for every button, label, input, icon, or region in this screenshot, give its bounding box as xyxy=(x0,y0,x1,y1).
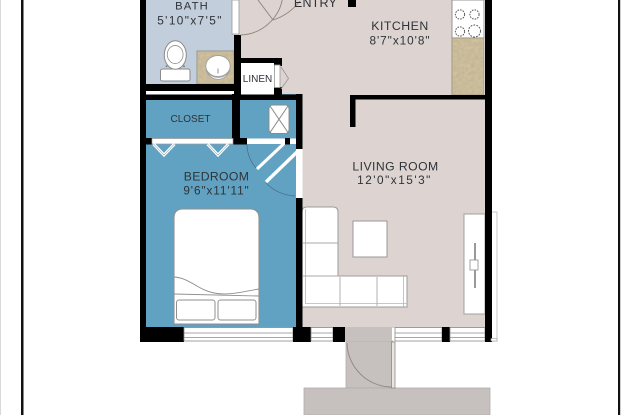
svg-text:KITCHEN: KITCHEN xyxy=(371,19,428,33)
svg-text:LINEN: LINEN xyxy=(243,74,272,85)
svg-text:LIVING ROOM: LIVING ROOM xyxy=(352,160,438,174)
svg-text:BEDROOM: BEDROOM xyxy=(184,170,249,184)
svg-text:CLOSET: CLOSET xyxy=(170,114,210,125)
svg-text:9'6"x11'11": 9'6"x11'11" xyxy=(183,184,249,198)
svg-text:8'7"x10'8": 8'7"x10'8" xyxy=(369,34,430,48)
svg-text:12'0"x15'3": 12'0"x15'3" xyxy=(357,173,432,187)
svg-text:BATH: BATH xyxy=(175,0,209,12)
svg-text:ENTRY: ENTRY xyxy=(294,0,338,10)
svg-text:5'10"x7'5": 5'10"x7'5" xyxy=(157,14,223,28)
